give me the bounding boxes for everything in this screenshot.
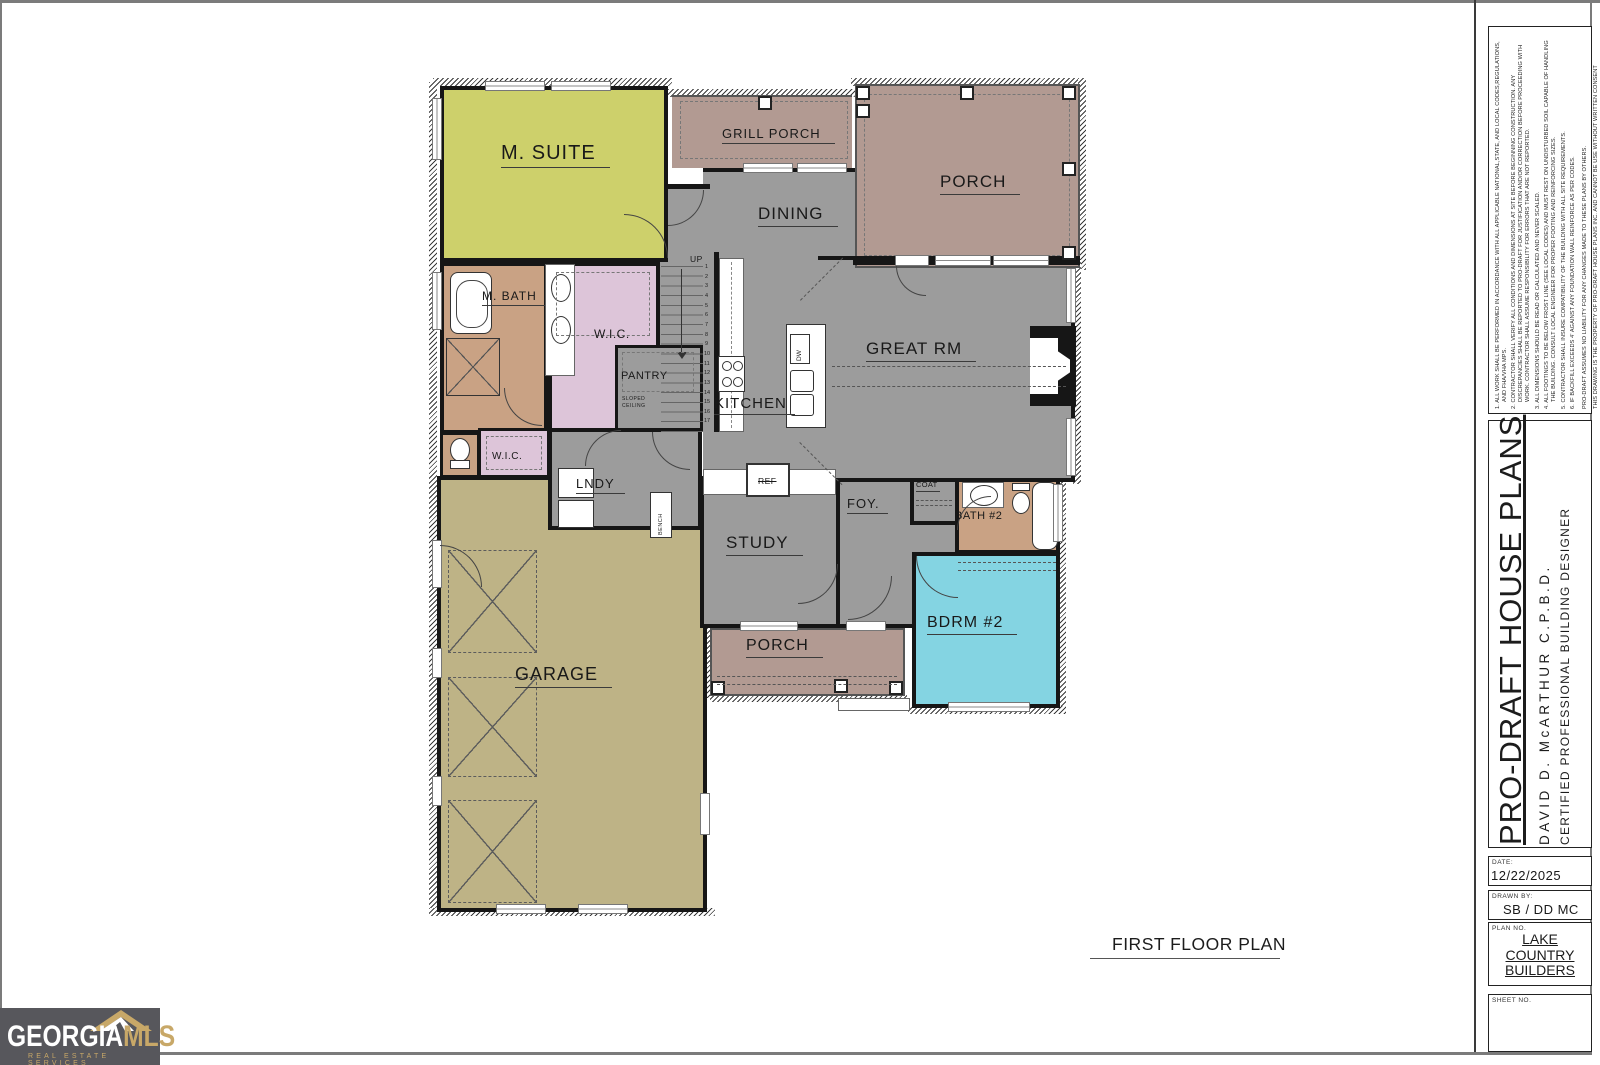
coat-wall-left <box>910 478 914 525</box>
window <box>1053 484 1063 542</box>
window <box>578 904 628 914</box>
label-foyer: FOY. <box>847 496 888 514</box>
drawn-by-box: DRAWN BY: SB / DD MC <box>1488 890 1592 920</box>
porch-post <box>960 86 974 100</box>
window <box>740 621 798 631</box>
designer-credential: CERTIFIED PROFESSIONAL BUILDING DESIGNER <box>1558 425 1572 845</box>
toilet-tank <box>1012 483 1030 491</box>
company-name: PRO-DRAFT HOUSE PLANS <box>1493 425 1529 845</box>
georgia-mls-logo: GEORGIAMLS REAL ESTATE SERVICES <box>0 1008 160 1065</box>
window <box>1066 268 1076 323</box>
garage-door-pier <box>432 776 442 806</box>
date-value: 12/22/2025 <box>1491 868 1561 883</box>
porch-post <box>1062 246 1076 260</box>
stair-num: 16 <box>704 410 710 416</box>
stair-num: 10 <box>704 352 710 358</box>
stair-num: 6 <box>705 313 708 319</box>
stair-arrow-line <box>681 269 682 353</box>
label-coat: COAT <box>916 480 940 492</box>
label-pantry: PANTRY <box>621 370 668 382</box>
note-4: 4. ALL FOOTINGS TO BE BELOW FROST LINE (… <box>1544 35 1557 409</box>
window <box>743 163 793 173</box>
stair-num: 3 <box>705 284 708 290</box>
date-label: DATE: <box>1489 857 1591 866</box>
toilet-bowl <box>1012 492 1030 514</box>
label-garage: GARAGE <box>515 664 612 688</box>
stair-num: 1 <box>705 265 708 271</box>
ceiling-dash <box>832 386 1066 387</box>
stair-num: 11 <box>704 362 710 368</box>
notes-box: 1. ALL WORK SHALL BE PERFORMED IN ACCORD… <box>1488 26 1592 414</box>
company-text: PRO-DRAFT HOUSE PLANS DAVID D. McARTHUR … <box>1493 425 1591 845</box>
burner <box>733 377 743 387</box>
note-3: 3. ALL DIMENSIONS SHOULD BE READ OR CALC… <box>1535 35 1542 409</box>
label-dining: DINING <box>758 204 838 227</box>
front-door-opening <box>846 621 886 631</box>
label-bdrm-2: BDRM #2 <box>927 614 1017 635</box>
window <box>485 81 545 91</box>
garage-door-pier <box>432 648 442 678</box>
burner <box>722 377 732 387</box>
kitchen-sink <box>790 370 814 392</box>
stair-num: 2 <box>705 275 708 281</box>
stair-num: 5 <box>705 304 708 310</box>
note-5: 5. CONTRACTOR SHALL INSURE COMPATIBILITY… <box>1561 35 1568 409</box>
sheet-no-label: SHEET NO. <box>1489 995 1591 1004</box>
ceiling-dash <box>832 366 1066 367</box>
door-opening <box>700 793 710 835</box>
logo-text-mls: MLS <box>123 1020 175 1053</box>
porch-dash <box>717 684 897 685</box>
drawn-by-value: SB / DD MC <box>1503 902 1579 917</box>
bdrm-closet-dash <box>958 562 1056 563</box>
window <box>993 255 1049 266</box>
porch-post <box>856 104 870 118</box>
designer-name: DAVID D. McARTHUR C.P.B.D. <box>1537 425 1552 845</box>
garage-bay-marker <box>448 677 537 777</box>
note-1: 1. ALL WORK SHALL BE PERFORMED IN ACCORD… <box>1495 35 1508 409</box>
logo-tagline: REAL ESTATE SERVICES <box>28 1053 160 1065</box>
label-sloped-1: SLOPED <box>622 396 645 402</box>
toilet-tank <box>450 460 470 469</box>
sheet-no-box: SHEET NO. <box>1488 994 1592 1052</box>
porch-post <box>1062 162 1076 176</box>
note-6: 6. IF BACKFILL EXCEEDS 4' AGAINST ANY FO… <box>1570 35 1577 409</box>
window <box>432 98 442 160</box>
sheet-border-top <box>0 0 1600 3</box>
sheet-border-bottom <box>0 1052 1592 1055</box>
bdrm-closet-dash <box>958 570 1056 571</box>
window <box>948 702 1030 712</box>
stair-num: 13 <box>704 381 710 387</box>
label-wic-2: W.I.C. <box>492 451 522 462</box>
drawn-by-label: DRAWN BY: <box>1489 891 1591 900</box>
window <box>496 904 546 914</box>
stair-num: 17 <box>704 419 710 425</box>
plan-no-box: PLAN NO. LAKE COUNTRY BUILDERS <box>1488 922 1592 986</box>
shower <box>446 338 500 396</box>
dishwasher: DW <box>790 334 810 364</box>
bench-label: BENCH <box>658 513 664 535</box>
logo-wordmark: GEORGIAMLS <box>7 1020 175 1054</box>
dryer <box>558 500 594 528</box>
label-kitchen: KITCHEN <box>714 395 795 415</box>
logo-text-georgia: GEORGIA <box>7 1020 123 1053</box>
plan-no-line1: LAKE <box>1489 932 1591 948</box>
plan-no-line3: BUILDERS <box>1489 963 1591 979</box>
label-laundry: LNDY <box>576 476 625 494</box>
notes-text: 1. ALL WORK SHALL BE PERFORMED IN ACCORD… <box>1495 35 1589 409</box>
window <box>551 81 611 91</box>
stair-num: 7 <box>705 323 708 329</box>
liability-note: PRO-DRAFT ASSUMES NO LIABILITY FOR ANY C… <box>1582 35 1589 409</box>
copyright-note: THIS DRAWING IS THE PROPERTY OF PRO-DRAF… <box>1593 35 1600 409</box>
company-box: PRO-DRAFT HOUSE PLANS DAVID D. McARTHUR … <box>1488 420 1592 848</box>
drawing-sheet: UP 1 2 3 4 5 6 7 8 9 10 11 12 13 14 15 1… <box>0 0 1600 1065</box>
label-wic-1: W.I.C. <box>594 327 630 341</box>
porch-post <box>1062 86 1076 100</box>
toilet-bowl <box>450 438 470 462</box>
stair-num: 8 <box>705 333 708 339</box>
label-study: STUDY <box>726 533 803 556</box>
stair-up-label: UP <box>690 254 703 264</box>
stair-num: 14 <box>704 391 710 397</box>
label-m-suite: M. SUITE <box>501 142 610 168</box>
window <box>935 255 991 266</box>
burner <box>733 361 743 371</box>
sheet-border-left <box>0 0 2 1055</box>
label-bath-2: BATH #2 <box>955 510 1002 522</box>
stair-num: 15 <box>704 400 710 406</box>
window <box>797 163 847 173</box>
entry-step <box>838 698 910 711</box>
ref-label: REF <box>758 476 777 486</box>
plan-caption-text: FIRST FLOOR PLAN <box>1112 934 1286 954</box>
stair-num: 9 <box>705 342 708 348</box>
stair-num: 4 <box>705 294 708 300</box>
date-box: DATE: 12/22/2025 <box>1488 856 1592 886</box>
label-m-bath: M. BATH <box>482 289 545 306</box>
hall-wall-top <box>664 184 710 189</box>
refrigerator: REF <box>746 463 790 497</box>
range <box>718 356 745 392</box>
coat-wall-bottom <box>910 521 957 525</box>
titleblock-divider <box>1474 0 1476 1052</box>
porch-post <box>834 679 848 693</box>
porch-dash <box>717 676 897 677</box>
bench: BENCH <box>650 492 672 538</box>
burner <box>722 361 732 371</box>
plan-caption: FIRST FLOOR PLAN <box>1090 934 1280 959</box>
note-2: 2. CONTRACTOR SHALL VERIFY ALL CONDITION… <box>1511 35 1531 409</box>
door-opening <box>895 255 929 266</box>
window <box>432 272 442 330</box>
label-porch-top: PORCH <box>940 172 1020 195</box>
coat-rod-dash <box>916 505 952 506</box>
window <box>1066 418 1076 476</box>
coat-rod-dash <box>916 500 952 501</box>
dishwasher-label: DW <box>796 350 803 361</box>
porch-post <box>856 86 870 100</box>
garage-bay-marker <box>448 800 537 903</box>
label-porch-bottom: PORCH <box>746 637 823 658</box>
plan-no-line2: COUNTRY <box>1489 948 1591 964</box>
grill-porch-post <box>758 96 772 110</box>
label-sloped-2: CEILING <box>622 403 646 409</box>
label-grill-porch: GRILL PORCH <box>722 126 835 144</box>
label-great-rm: GREAT RM <box>866 339 976 362</box>
stair-num: 12 <box>704 371 710 377</box>
